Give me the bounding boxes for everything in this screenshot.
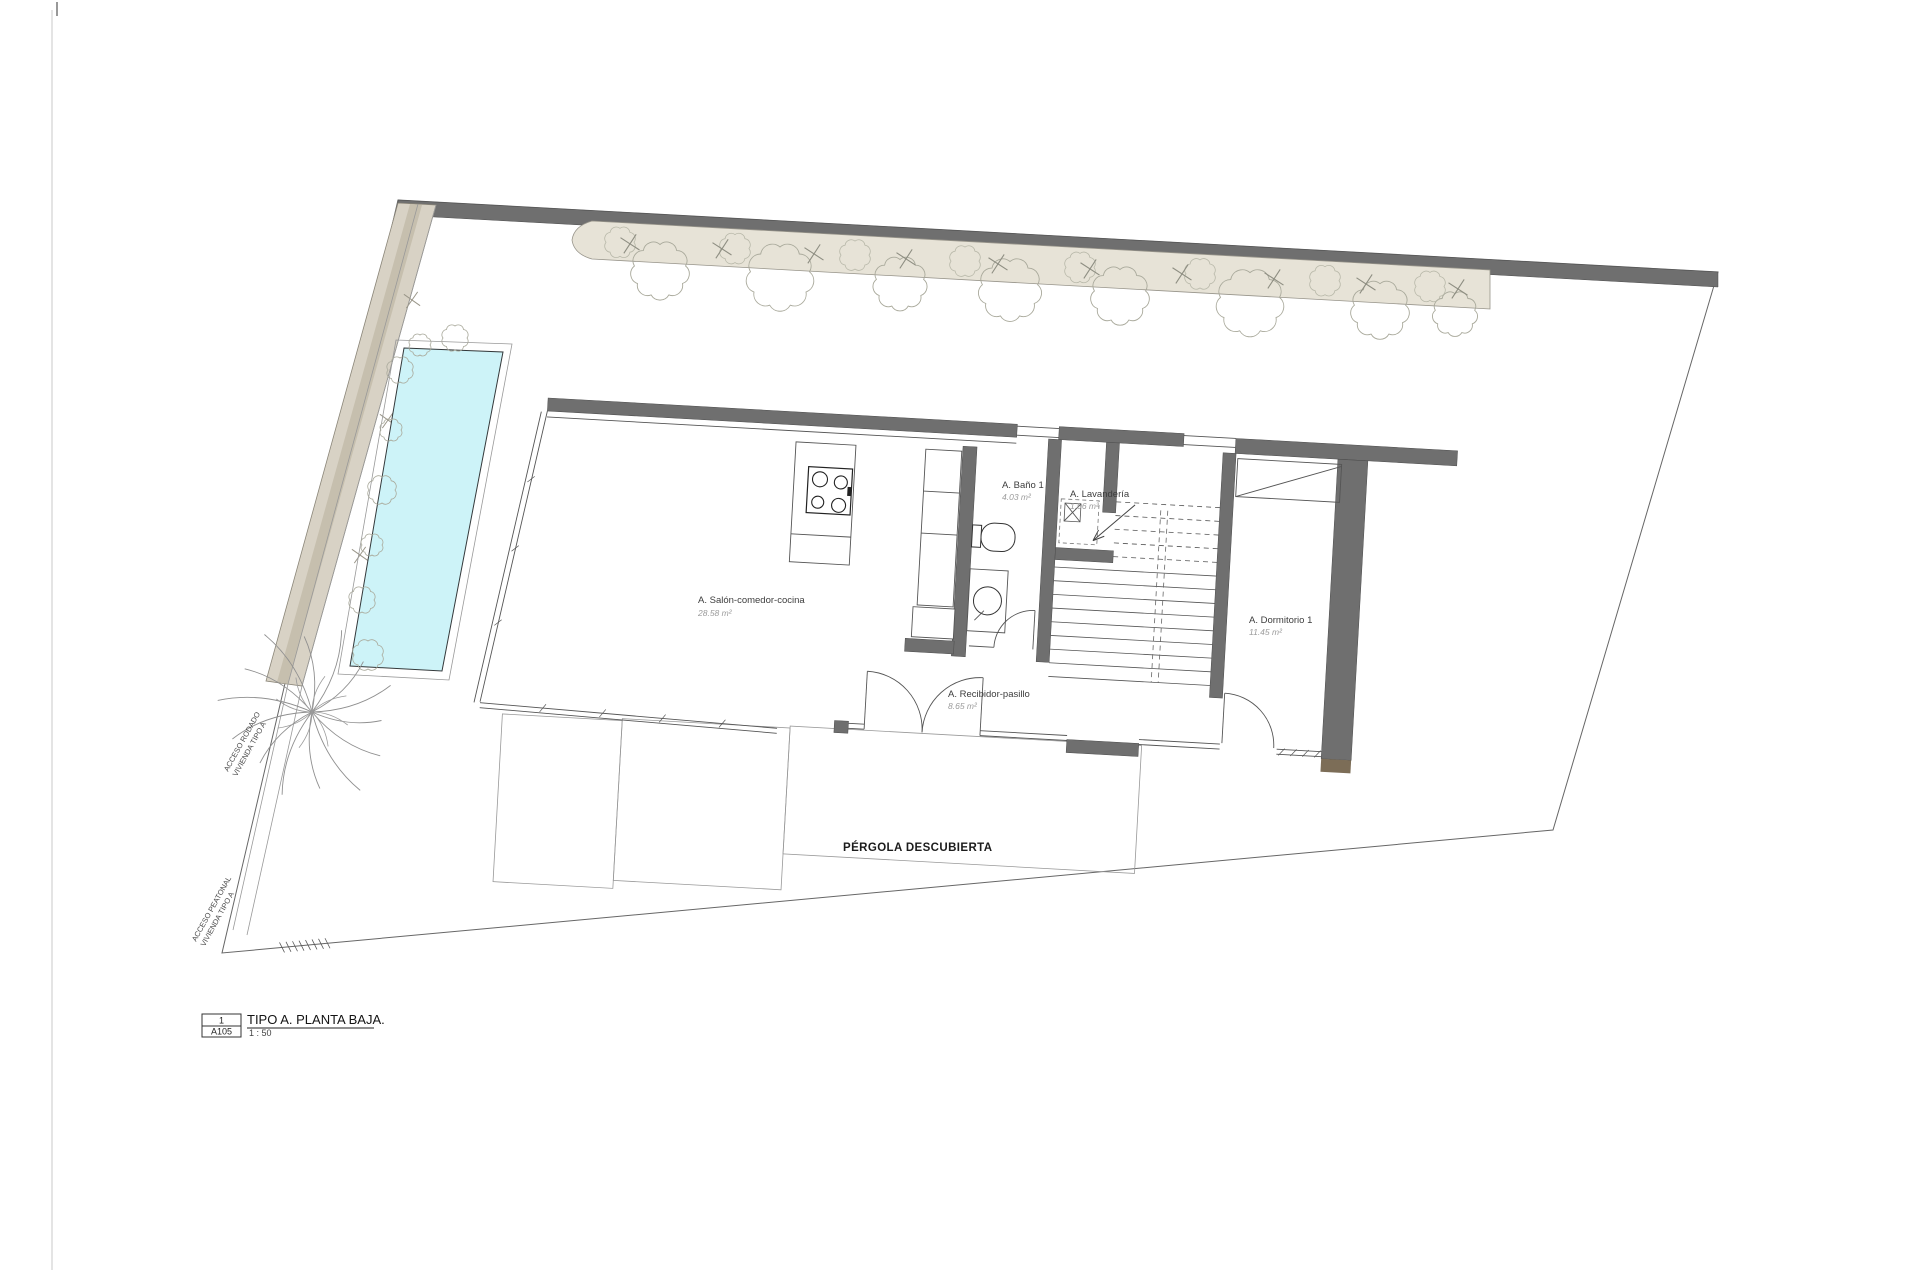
lower-cabinet xyxy=(911,607,955,639)
wall-kitchen-south xyxy=(905,638,955,654)
label-bedroom: A. Dormitorio 1 xyxy=(1249,615,1312,626)
label-laundry: A. Lavandería xyxy=(1070,489,1130,500)
area-living: 28.58 m² xyxy=(697,608,733,618)
drawing-scale: 1 : 50 xyxy=(249,1028,272,1038)
drawing-sheet: A. Salón-comedor-cocina 28.58 m² A. Baño… xyxy=(0,0,1920,1280)
sheet-number: A105 xyxy=(211,1027,232,1037)
access-road-label: ACCESO RODADO VIVIENDA TIPO A xyxy=(222,710,271,778)
area-hall: 8.65 m² xyxy=(948,701,978,711)
pier-entry xyxy=(834,720,849,733)
area-bedroom: 11.45 m² xyxy=(1249,627,1283,637)
toilet-bowl xyxy=(980,522,1016,552)
toilet-tank xyxy=(971,525,981,547)
title-block: 1 A105 TIPO A. PLANTA BAJA. 1 : 50 xyxy=(202,1012,385,1038)
floor-plan-svg: A. Salón-comedor-cocina 28.58 m² A. Baño… xyxy=(0,0,1920,1280)
label-hall: A. Recibidor-pasillo xyxy=(948,689,1030,700)
sheet-frame xyxy=(52,2,57,1270)
label-bath: A. Baño 1 xyxy=(1002,480,1044,491)
label-living: A. Salón-comedor-cocina xyxy=(698,595,805,606)
detail-number: 1 xyxy=(219,1016,224,1026)
label-pergola: PÉRGOLA DESCUBIERTA xyxy=(843,841,992,854)
pillar-wood-cap xyxy=(1320,759,1351,774)
area-laundry: 1.06 m² xyxy=(1070,501,1100,511)
area-bath: 4.03 m² xyxy=(1002,492,1032,502)
cooktop-knob xyxy=(847,487,851,496)
drawing-title: TIPO A. PLANTA BAJA. xyxy=(247,1012,385,1027)
